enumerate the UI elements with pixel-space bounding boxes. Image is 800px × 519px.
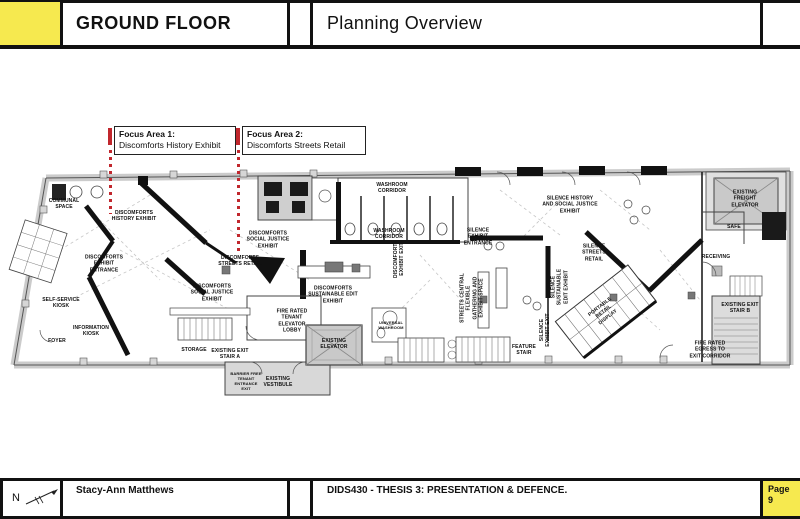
slide-page: Communal Space Discomforts History Exhib…	[0, 0, 800, 519]
room-label-discomforts-social-justice-exhibit: Discomforts Social Justice Exhibit	[242, 231, 294, 250]
room-label-universal-washroom: Universal Washroom	[377, 320, 405, 330]
header-top-rule	[0, 0, 800, 3]
room-label-fire-rated-tenant-elevator-lobby: Fire Rated Tenant Elevator Lobby	[271, 309, 313, 334]
focus-area-2-title: Focus Area 2:	[247, 129, 361, 140]
page-number: 9	[768, 495, 800, 506]
room-label-discomforts-social-justice-exhibit-2: Discomforts Social Justice Exhibit	[186, 284, 238, 303]
north-arrow-icon	[22, 483, 62, 511]
room-label-existing-exit-stair-a: Existing Exit Stair A	[208, 348, 252, 361]
page-subtitle: Planning Overview	[327, 13, 482, 34]
author-name: Stacy-Ann Matthews	[76, 485, 174, 496]
room-label-feature-stair: Feature Stair	[508, 344, 540, 357]
footer-divider	[310, 478, 313, 519]
room-label-fire-rated-egress-to-exit-corridor: Fire Rated Egress to Exit Corridor	[689, 341, 731, 360]
page-word: Page	[768, 484, 800, 495]
focus-area-1-leader-line	[109, 150, 112, 214]
header-divider	[760, 0, 763, 48]
room-label-washroom-corridor-bottom: Washroom Corridor	[365, 228, 413, 241]
focus-area-1-subtitle: Discomforts History Exhibit	[119, 140, 231, 151]
focus-area-1-title: Focus Area 1:	[119, 129, 231, 140]
footer-top-rule	[0, 478, 800, 481]
header-divider	[287, 0, 290, 48]
focus-area-2-callout: Focus Area 2: Discomforts Streets Retail	[242, 126, 366, 155]
room-label-information-kiosk: Information Kiosk	[69, 325, 113, 338]
room-label-discomforts-sustainable-edit-exhibit: Discomforts Sustainable Edit Exhibit	[305, 286, 361, 305]
page-number-badge: Page 9	[763, 481, 800, 516]
accent-yellow-block	[0, 2, 60, 46]
page-title: GROUND FLOOR	[76, 13, 231, 34]
room-label-discomforts-history-exhibit: Discomforts History Exhibit	[110, 210, 158, 223]
room-label-self-service-kiosk: Self-Service Kiosk	[39, 297, 83, 310]
north-label: N	[12, 492, 20, 504]
room-label-receiving: Receiving	[698, 254, 734, 260]
room-label-discomforts-streets-retail: Discomforts Streets Retail	[218, 255, 262, 268]
room-label-existing-freight-elevator: Existing Freight Elevator	[724, 190, 766, 209]
focus-area-2-subtitle: Discomforts Streets Retail	[247, 140, 361, 151]
room-label-foyer: Foyer	[42, 338, 72, 344]
header-bottom-rule	[0, 45, 800, 49]
room-label-existing-elevator: Existing Elevator	[314, 338, 354, 351]
room-label-existing-vestibule: Existing Vestibule	[256, 376, 300, 389]
footer-divider	[287, 478, 290, 519]
course-title: DIDS430 - THESIS 3: PRESENTATION & DEFEN…	[327, 485, 567, 496]
header-divider	[310, 0, 313, 48]
room-label-silence-sustainable-edit-exhibit: Silence Sustainable Edit Exhibit	[551, 263, 570, 311]
room-label-discomforts-exhibit-entrance: Discomforts Exhibit Entrance	[81, 255, 127, 274]
focus-area-2-marker	[236, 128, 240, 145]
room-label-existing-exit-stair-b: Existing Exit Stair B	[717, 302, 763, 315]
room-label-washroom-corridor-top: Washroom Corridor	[368, 182, 416, 195]
room-label-storage: Storage	[176, 347, 212, 353]
room-label-silence-exhibit-entrance: Silence Exhibit Entrance	[459, 228, 497, 247]
room-label-silence-streets-retail: Silence Streets Retail	[576, 244, 612, 263]
room-label-safe: Safe	[721, 224, 747, 230]
room-label-streets-central-flexible-gathering: Streets Central Flexible Gathering and E…	[460, 271, 485, 325]
focus-area-1-marker	[108, 128, 112, 145]
room-label-communal-space: Communal Space	[46, 198, 82, 211]
room-label-barrier-free-tenant-entrance-exit: Barrier Free Tenant Entrance Exit	[230, 371, 262, 391]
focus-area-2-leader-line	[237, 150, 240, 254]
room-label-discomforts-exhibit-exit: Discomforts Exhibit Exit	[393, 237, 406, 281]
room-label-silence-history-social-justice-exhibit: Silence History and Social Justice Exhib…	[541, 196, 599, 215]
focus-area-1-callout: Focus Area 1: Discomforts History Exhibi…	[114, 126, 236, 155]
footer-divider	[0, 478, 3, 519]
header-divider	[60, 0, 63, 48]
room-label-silence-exhibit-exit: Silence Exhibit Exit	[539, 310, 552, 350]
